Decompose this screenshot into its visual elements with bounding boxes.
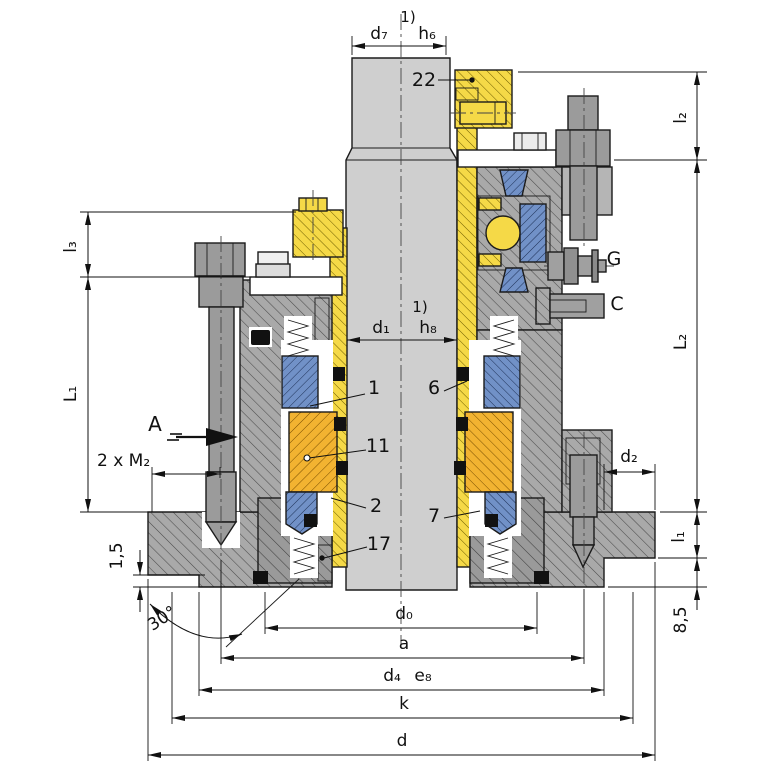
o-ring [253,571,268,584]
o-ring [333,367,345,381]
dim-top-d7-h6: 1) d₇ h₆ [352,8,446,55]
dim-h6: h₆ [418,24,436,44]
part-label-7: 7 [428,505,440,527]
dim-85: 8,5 [671,606,691,633]
dim-m2: 2 x M₂ [97,451,150,471]
o-ring [251,330,270,345]
part-label-1: 1 [368,377,380,399]
screw-head [258,252,288,265]
drive-collar [293,210,343,257]
top-left-hardware [250,190,343,295]
dim-d0: d₀ [395,604,413,624]
shaft [346,58,457,590]
hex-head [195,243,245,276]
connection-label-c: C [610,293,623,315]
dim-a: a [399,634,409,654]
part-label-6: 6 [428,377,440,399]
seal-ring [282,356,318,408]
dim-angle-30: 30° [144,579,299,647]
section-arrow-label-a: A [148,412,162,436]
dim-m2-holes: 2 x M₂ [97,451,220,512]
bearing-ball [486,216,520,250]
connection-label-g: G [607,248,622,270]
drawing-canvas: 22 1 6 11 2 7 17 A G C 1) d₇ h₆ 1) d₁ [0,0,768,768]
seal-ring [286,492,317,534]
dim-d4: d₄ [383,666,401,686]
part-label-2: 2 [370,495,382,517]
dim-30deg: 30° [144,602,180,635]
dim-k: k [399,694,409,714]
gland-bolt-left [195,236,245,556]
o-ring [336,461,348,475]
dim-15: 1,5 [107,542,127,569]
stud [570,166,597,240]
o-ring [304,514,317,527]
clamp-collar [450,70,516,128]
dim-d2-label: d₂ [620,447,638,467]
o-ring [534,571,549,584]
bearing-race [520,204,546,262]
seal-cross-section-drawing: 22 1 6 11 2 7 17 A G C 1) d₇ h₆ 1) d₁ [0,0,768,768]
part-label-22: 22 [412,69,436,91]
footnote-marker: 1) [412,298,427,316]
dim-e8: e₈ [414,666,431,686]
dim-d: d [397,731,408,751]
part-label-11: 11 [366,435,390,457]
dim-d1: d₁ [372,318,390,338]
stud-end [568,96,598,130]
thrust-ring [289,412,337,492]
plug-c [536,288,604,324]
footnote-marker: 1) [400,8,415,26]
hex-nut [556,130,610,166]
dim-h8: h₈ [419,318,437,338]
o-ring [334,417,346,431]
dim-l3: l₃ [61,241,81,253]
dim-l2: l₂ [671,112,691,124]
dim-L2: L₂ [671,334,691,350]
dim-d7: d₇ [370,24,388,44]
retaining-plate [250,277,342,295]
part-label-17: 17 [367,533,391,555]
dim-l1: l₁ [669,531,689,543]
screw-head [514,133,546,150]
dim-L1: L₁ [61,386,81,402]
retaining-plate [458,150,556,167]
